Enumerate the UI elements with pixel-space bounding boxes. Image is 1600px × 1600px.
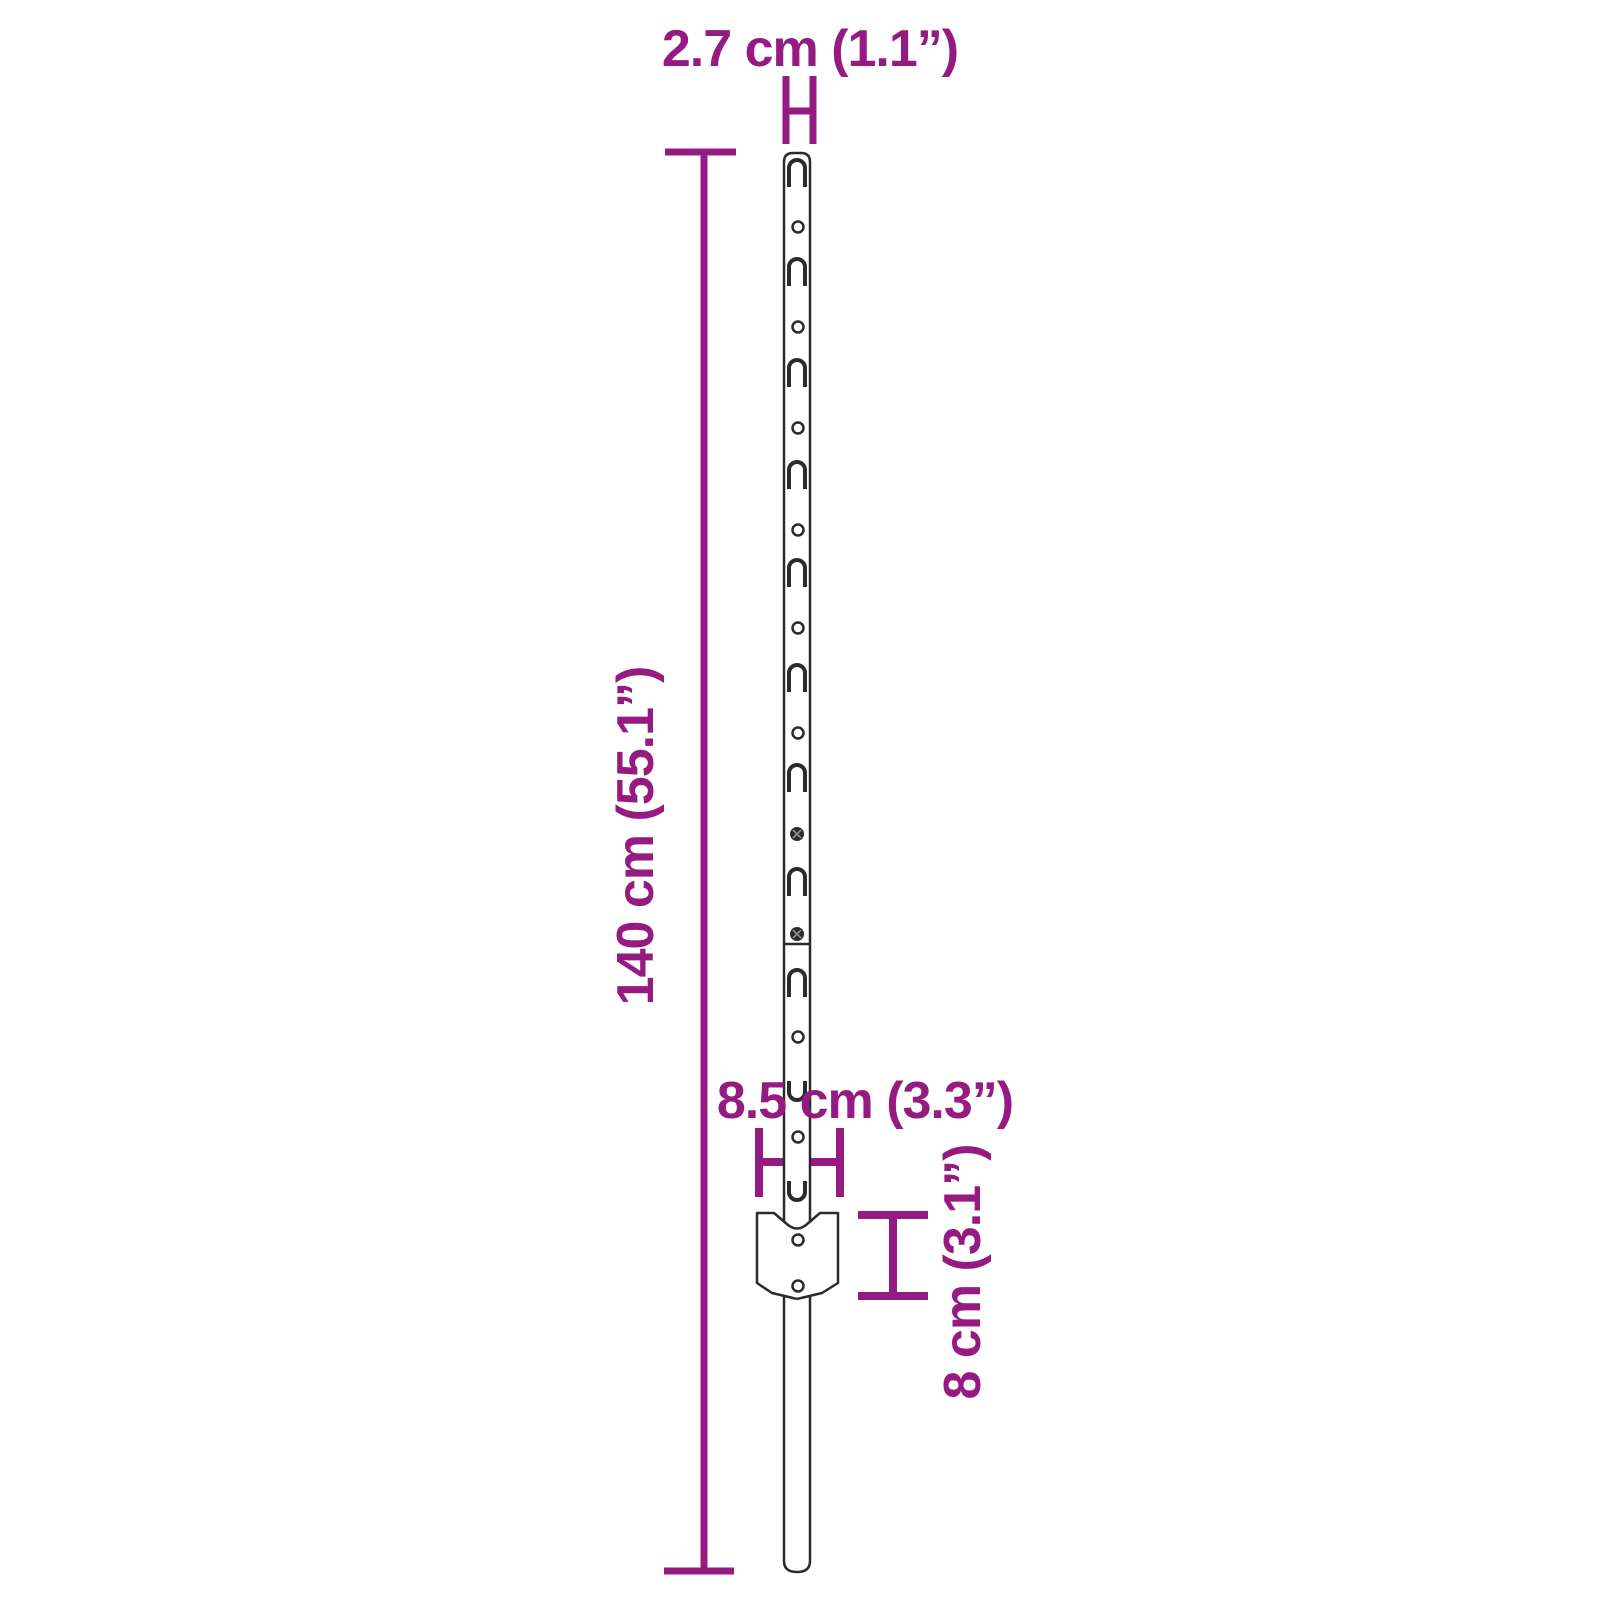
plate-width-label: 8.5 cm (3.3”)	[717, 1072, 1013, 1130]
plate-height-dimension-line	[858, 1215, 928, 1296]
plate-height-label: 8 cm (3.1”)	[934, 1145, 992, 1400]
dimension-diagram: 2.7 cm (1.1”) 140 cm (55.1”) 8.5 cm (3.3…	[0, 0, 1600, 1600]
plate-hole	[793, 1235, 804, 1246]
hole	[793, 222, 804, 233]
hole	[793, 1032, 804, 1043]
plate-hole	[793, 1281, 804, 1292]
product-dimension-image: 2.7 cm (1.1”) 140 cm (55.1”) 8.5 cm (3.3…	[0, 0, 1600, 1600]
hole	[793, 1132, 804, 1143]
post-height-label: 140 cm (55.1”)	[607, 667, 665, 1006]
post-width-label: 2.7 cm (1.1”)	[662, 20, 958, 78]
post-height-dimension-line	[664, 152, 736, 1571]
post-width-dimension-line	[783, 76, 816, 144]
hole	[793, 728, 804, 739]
hole	[793, 322, 804, 333]
hole	[793, 525, 804, 536]
hole	[793, 623, 804, 634]
post-graphic	[757, 153, 838, 1572]
hole	[793, 423, 804, 434]
